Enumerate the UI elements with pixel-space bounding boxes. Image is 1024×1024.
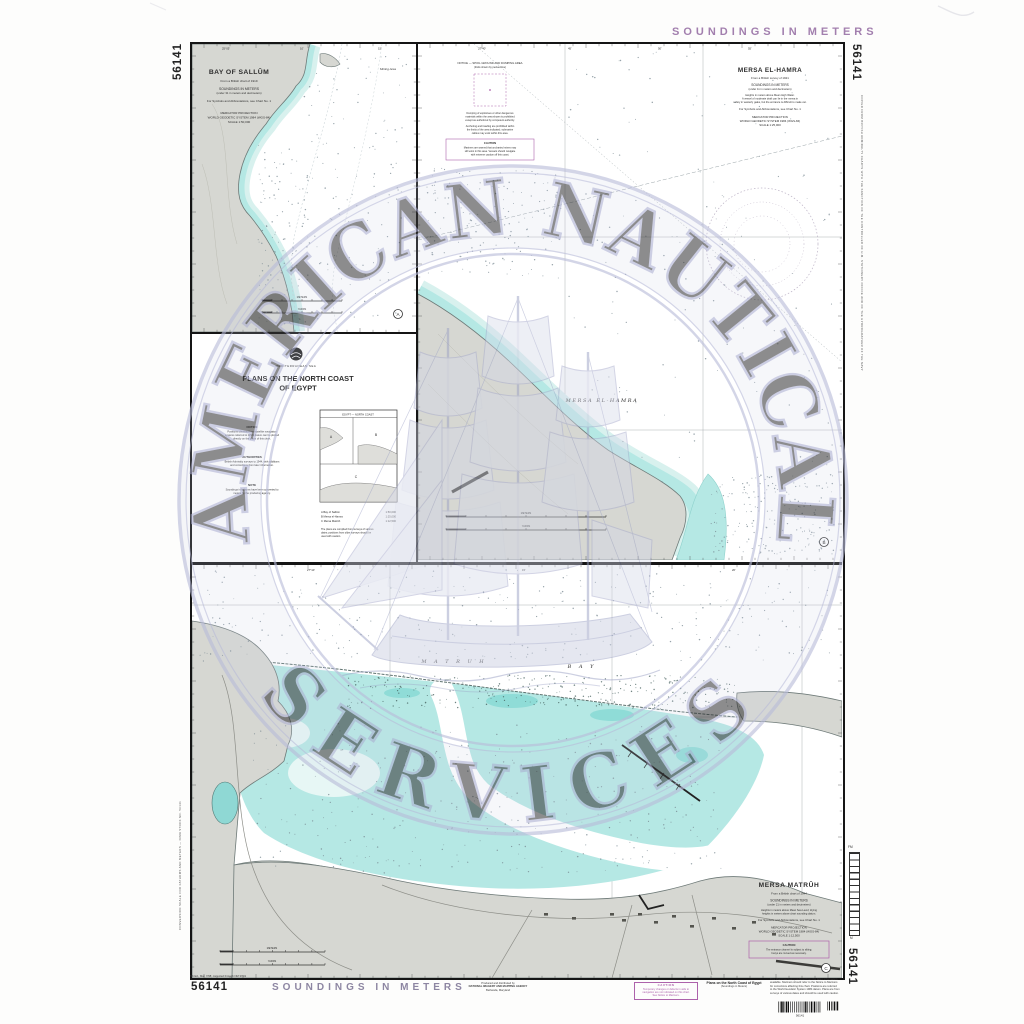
barcode-caption: 56141 <box>796 1013 805 1017</box>
chart-neatline-frame: BAY OF SALLÛM From a British chart of 19… <box>190 42 845 980</box>
hamra-soundings-sub: (under 11 in meters and decimeters) <box>748 87 791 91</box>
footer-chart-subtitle: (Soundings in Meters) <box>702 985 766 988</box>
right-margin-copyright-note: COPIED FROM BRITISH ADMIRALTY CHARTS WIT… <box>860 95 864 345</box>
hamra-degree-1: 45' <box>568 47 572 51</box>
publisher-block: Produced and distributed by NATIONAL IMA… <box>452 982 544 992</box>
index-inset-c-coast <box>320 483 397 502</box>
hamra-map-label: MERSA EL-HAMRA <box>565 398 639 404</box>
hamra-notice-block: NOTICE — SPOIL GROUND AND DUMPING AREA (… <box>446 61 534 160</box>
sallum-degree-2: 15' <box>378 47 382 51</box>
hamra-yards-label: YARDS <box>522 525 531 528</box>
block-note-line3: used with caution. <box>321 535 341 538</box>
matruh-degree-2: 20' <box>732 568 736 572</box>
scale-line2-value: 1:25,000 <box>386 515 397 519</box>
hamra-note3: safety in westerly gales, but the entran… <box>733 100 807 104</box>
footer-caution-line3: See Notice to Mariners. <box>637 994 695 997</box>
section2-heading: AUTHORITIES <box>242 455 262 459</box>
ladder-top-label: FM <box>848 845 853 849</box>
matruh-bay-label-2: B A Y <box>567 664 597 670</box>
matruh-scale: SCALE 1:12,500 <box>778 933 800 937</box>
footer-note-paragraph: This chart has been produced from the la… <box>770 978 844 995</box>
bay-of-sallum-map: BAY OF SALLÛM From a British chart of 19… <box>192 44 416 332</box>
mersa-el-hamra-map: NOTICE — SPOIL GROUND AND DUMPING AREA (… <box>418 44 842 560</box>
section1-heading: NOTICE <box>247 425 258 429</box>
hamra-soundings: SOUNDINGS IN METERS <box>751 83 789 87</box>
sand-spit <box>320 54 340 67</box>
matruh-east-land <box>737 691 842 737</box>
section1-line2: systems referred to WGS datum can be plo… <box>225 433 280 437</box>
section1-line1: Positions obtained from satellite naviga… <box>227 430 277 434</box>
ladder-bottom-label: M <box>850 936 853 940</box>
scale-line3-label: C Mersa Matrûh <box>321 519 341 523</box>
matruh-source: From a British chart of 1944 <box>771 891 807 895</box>
section2-line2: and corrections from later information. <box>230 463 274 467</box>
chart-number-bottom-left: 56141 <box>191 981 228 993</box>
panel-bay-of-sallum: BAY OF SALLÛM From a British chart of 19… <box>192 44 416 332</box>
hamra-note1: Heights in meters above Mean High Water. <box>745 93 795 97</box>
chart-number-top-left: 56141 <box>172 43 184 80</box>
sallum-source: From a British chart of 1919 <box>220 79 257 83</box>
sallum-soundings-sub: (under 31 in meters and decimeters) <box>216 91 261 95</box>
notice-p2-line3: cables may exist within this area. <box>472 132 509 135</box>
hamra-symbols-note: For Symbols and Abbreviations, see Chart… <box>739 107 801 111</box>
matruh-bay-label-1: M A T R U H <box>420 659 486 665</box>
notice-p1-line3: except as authorized by competent author… <box>465 119 515 122</box>
track-line-2 <box>474 44 842 362</box>
sallum-degree-1: 10' <box>300 47 304 51</box>
chart-main-title-line2: OF EGYPT <box>279 384 317 393</box>
matruh-meters-label: METERS <box>267 947 278 950</box>
publisher-line3: Bethesda, Maryland <box>452 989 544 992</box>
matruh-title: MERSA MATRÛH <box>759 880 820 889</box>
matruh-symbols-note: For Symbols and Abbreviations, see Chart… <box>758 918 820 922</box>
sallum-projection: MERCATOR PROJECTION <box>220 111 257 115</box>
matruh-degree-1: 15' <box>522 568 526 572</box>
sea-name-label: MEDITERRANEAN SEA <box>276 364 317 368</box>
footer-note-line5: surveys of various dates and should be u… <box>770 992 844 995</box>
matruh-soundings: SOUNDINGS IN METERS <box>770 898 808 902</box>
section3-line1: Soundings in fathoms have been converted… <box>226 488 279 492</box>
sallum-degree-0: 25°05' <box>222 47 230 51</box>
matruh-caution-title: CAUTION <box>783 943 796 947</box>
bottom-soundings-label: SOUNDINGS IN METERS <box>272 982 466 993</box>
hamra-land <box>418 294 686 560</box>
edition-note: 5th Ed., Mar. 7/98; corrected through NM… <box>190 975 270 978</box>
chart-main-title-line1: PLANS ON THE NORTH COAST <box>242 374 354 383</box>
matruh-note1: Heights in meters above Mean Sea Level; … <box>761 908 817 912</box>
barcode-small <box>826 1001 839 1012</box>
spoil-ground-mark <box>489 89 491 91</box>
sallum-title: BAY OF SALLÛM <box>209 67 269 76</box>
hamra-degree-2: 50' <box>658 47 662 51</box>
hamra-caution-line3: with extreme caution off this coast. <box>471 154 510 157</box>
footer-title-block: Plans on the North Coast of Egypt (Sound… <box>702 981 766 988</box>
sallum-yards-label: YARDS <box>298 308 307 311</box>
panel-mersa-matruh: M A T R U H B A Y MERSA MATRÛH From a Br… <box>192 565 842 978</box>
hamra-meters-label: METERS <box>521 512 532 515</box>
matruh-yards-label: YARDS <box>268 960 277 963</box>
lagoon-basin-1 <box>288 749 380 797</box>
section1-line3: directly on the plans of this chart. <box>233 437 271 441</box>
left-margin-conversion-note: CONVERSION SCALE FOR FATHOMS AND METERS … <box>178 700 182 930</box>
scale-line3-value: 1:12,500 <box>386 519 397 523</box>
barcode: 56141 <box>777 1001 823 1017</box>
sallum-scale: SCALE 1:50,000 <box>228 120 251 124</box>
sallum-mining-area-label: Mining Area <box>380 67 396 71</box>
panel-title-block: MEDITERRANEAN SEA PLANS ON THE NORTH COA… <box>192 334 416 562</box>
nautical-chart-product-image: SOUNDINGS IN METERS 56141 56141 56141 CO… <box>0 0 1024 1024</box>
hamra-source: From a British survey of 1921 <box>751 76 789 80</box>
index-map-title: EGYPT — NORTH COAST <box>342 413 374 417</box>
chart-index-map: EGYPT — NORTH COAST A B C <box>320 410 397 502</box>
sallum-symbols-note: For Symbols and Abbreviations, see Chart… <box>207 99 272 103</box>
scale-line1-value: 1:50,000 <box>386 510 397 514</box>
hamra-degree-3: 55' <box>748 47 752 51</box>
matruh-degree-0: 27°10' <box>307 568 315 572</box>
matruh-note2: heights in meters above chart sounding d… <box>762 911 816 915</box>
matruh-caution-line2: buoys are moved as necessary. <box>771 952 806 955</box>
footer-note-line4: to the World Geodetic System 1984 datum.… <box>770 988 844 991</box>
panel-mersa-el-hamra: NOTICE — SPOIL GROUND AND DUMPING AREA (… <box>418 44 842 560</box>
photo-artifacts <box>0 0 1024 40</box>
hamra-caution-title: CAUTION <box>484 141 496 145</box>
hamra-scale: SCALE 1:25,000 <box>759 123 781 127</box>
footer-caution-box: CAUTION Temporary changes or defects in … <box>634 982 698 1000</box>
sallum-datum: WORLD GEODETIC SYSTEM 1984 (WGS-84) <box>208 116 271 120</box>
mersa-matruh-map: M A T R U H B A Y MERSA MATRÛH From a Br… <box>192 565 842 978</box>
chart-number-top-right: 56141 <box>850 44 862 81</box>
title-block: MEDITERRANEAN SEA PLANS ON THE NORTH COA… <box>192 334 416 562</box>
globe-emblem-icon <box>290 348 303 361</box>
chart-number-bottom-right: 56141 <box>846 948 858 985</box>
scale-line1-label: A Bay of Sallûm <box>321 510 341 514</box>
fathoms-meters-conversion-scale <box>849 852 860 936</box>
notice-heading-2: (limits shown by pecked line) <box>474 66 506 69</box>
hamra-title: MERSA EL-HAMRA <box>738 67 802 74</box>
notice-heading-1: NOTICE — SPOIL GROUND AND DUMPING AREA <box>457 61 522 65</box>
section3-heading: NOTE <box>248 483 256 487</box>
hamra-note2: A vessel of moderate draft can lie in th… <box>742 97 799 101</box>
matruh-soundings-sub: (under 21 in meters and decimeters) <box>767 902 810 906</box>
section3-line2: meters by the producing agency. <box>233 491 271 495</box>
depth-contour-2 <box>333 44 382 332</box>
scale-line2-label: B Mersa el-Hamra <box>321 515 343 519</box>
salt-lake <box>212 782 238 824</box>
sallum-meters-label: METERS <box>297 296 308 299</box>
section2-line1: British Admiralty surveys to 1944, with … <box>225 460 280 464</box>
